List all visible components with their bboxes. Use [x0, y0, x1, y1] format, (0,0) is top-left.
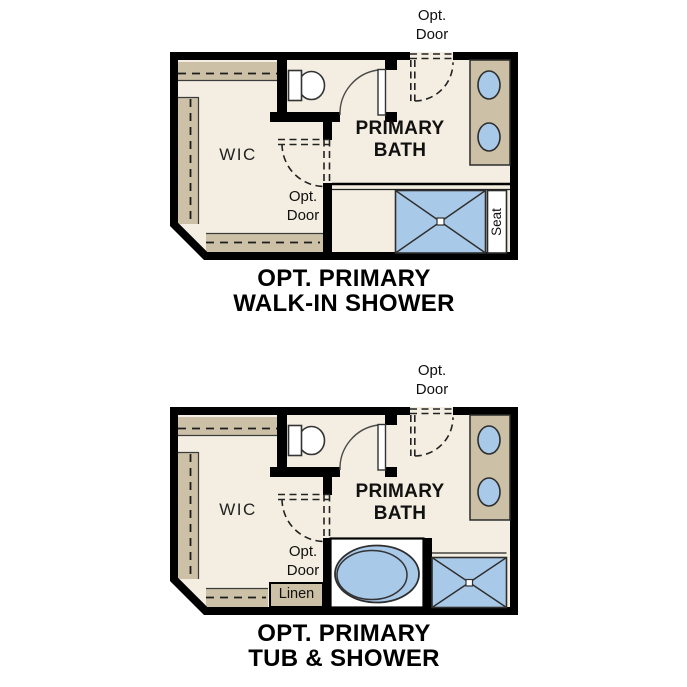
wic-room-label: WIC	[198, 145, 278, 165]
vanity-counter	[470, 60, 510, 165]
primary-bath-line2: BATH	[330, 140, 470, 162]
opt-door-mid-label: Opt. Door	[263, 187, 343, 225]
shower	[432, 553, 507, 608]
vanity-counter	[470, 415, 510, 520]
sink-icon	[478, 478, 500, 506]
tub-and-shower-floorplan: Opt. Door WIC PRIMARY BATH Opt. Door Lin…	[170, 407, 518, 615]
seat-label: Seat	[489, 192, 505, 252]
primary-bath-line1: PRIMARY	[330, 481, 470, 503]
plan-title-line2: TUB & SHOWER	[110, 646, 578, 671]
primary-bath-label: PRIMARY BATH	[330, 481, 470, 525]
opt-door-top-line1: Opt.	[392, 6, 472, 25]
plan-title-line2: WALK-IN SHOWER	[110, 291, 578, 316]
plan-title-line1: OPT. PRIMARY	[110, 266, 578, 291]
opt-door-mid-line2: Door	[263, 206, 343, 225]
primary-bath-line2: BATH	[330, 503, 470, 525]
walk-in-shower-floorplan: Opt. Door WIC PRIMARY BATH Opt. Door Sea…	[170, 52, 518, 260]
sink-icon	[478, 123, 500, 151]
plan-title-walk-in-shower: OPT. PRIMARY WALK-IN SHOWER	[110, 266, 578, 316]
floorplan-canvas: Opt. Door WIC PRIMARY BATH Opt. Door Sea…	[0, 0, 687, 687]
opt-door-top-label: Opt. Door	[392, 361, 472, 399]
bathtub	[331, 539, 424, 608]
sink-icon	[478, 71, 500, 99]
opt-door-mid-line1: Opt.	[263, 187, 343, 206]
primary-bath-label: PRIMARY BATH	[330, 118, 470, 162]
plan-title-tub-and-shower: OPT. PRIMARY TUB & SHOWER	[110, 621, 578, 671]
opt-door-mid-line1: Opt.	[263, 542, 343, 561]
sink-icon	[478, 426, 500, 454]
opt-door-mid-line2: Door	[263, 561, 343, 580]
toilet-icon	[289, 426, 325, 456]
opt-door-top-line1: Opt.	[392, 361, 472, 380]
primary-bath-line1: PRIMARY	[330, 118, 470, 140]
opt-door-top-label: Opt. Door	[392, 6, 472, 44]
opt-door-mid-label: Opt. Door	[263, 542, 343, 580]
plan-title-line1: OPT. PRIMARY	[110, 621, 578, 646]
toilet-icon	[289, 71, 325, 101]
opt-door-top-line2: Door	[392, 380, 472, 399]
wic-room-label: WIC	[198, 500, 278, 520]
linen-closet-label: Linen	[269, 582, 324, 608]
opt-door-top-line2: Door	[392, 25, 472, 44]
